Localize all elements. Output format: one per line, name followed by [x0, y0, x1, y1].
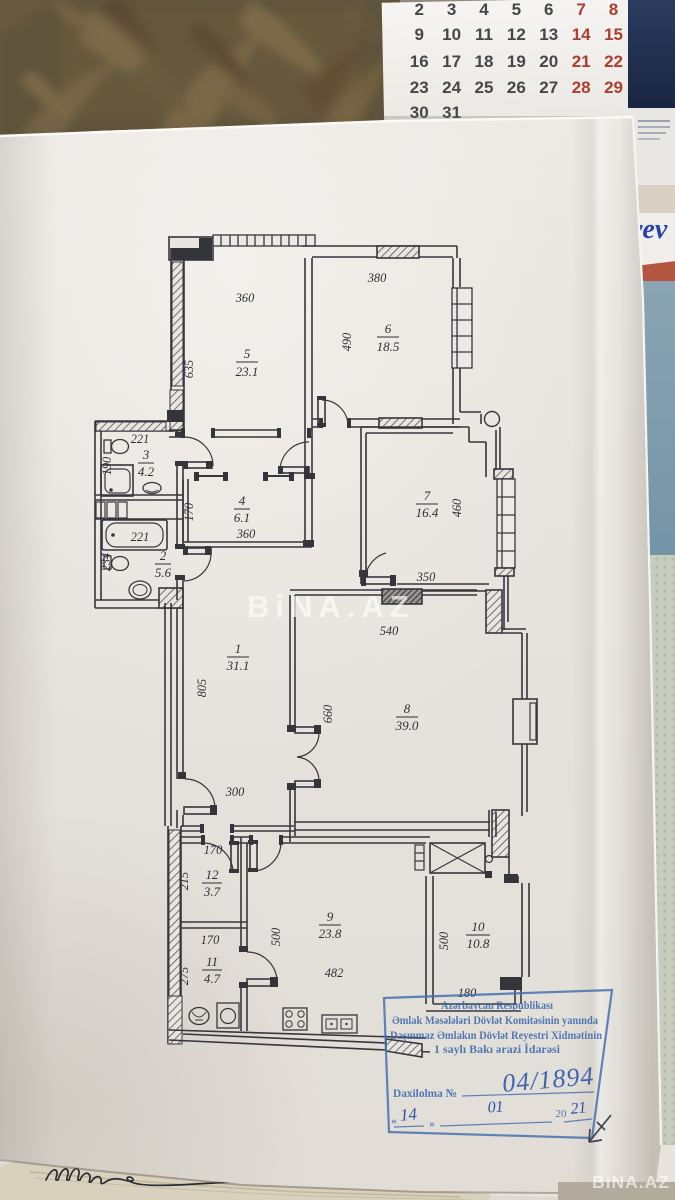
svg-text:805: 805: [195, 679, 209, 697]
svg-text:221: 221: [131, 530, 149, 544]
svg-text:4.7: 4.7: [204, 971, 221, 986]
svg-text:«: «: [391, 1115, 397, 1127]
svg-text:10.8: 10.8: [467, 936, 490, 951]
svg-text:23.8: 23.8: [319, 926, 342, 941]
svg-text:3.7: 3.7: [203, 884, 221, 899]
svg-text:5: 5: [244, 346, 251, 361]
svg-text:16.4: 16.4: [416, 505, 439, 520]
svg-text:18.5: 18.5: [377, 339, 400, 354]
svg-text:39.0: 39.0: [395, 718, 419, 733]
svg-text:660: 660: [321, 705, 335, 723]
svg-text:350: 350: [416, 570, 435, 584]
svg-text:»: »: [429, 1118, 435, 1130]
svg-text:7: 7: [424, 488, 431, 503]
svg-text:9: 9: [327, 909, 334, 924]
svg-text:8: 8: [404, 701, 411, 716]
svg-text:6: 6: [385, 321, 392, 336]
svg-text:360: 360: [235, 291, 254, 305]
svg-text:23.1: 23.1: [236, 364, 259, 379]
svg-text:170: 170: [204, 843, 222, 857]
svg-text:20: 20: [556, 1108, 568, 1120]
svg-text:215: 215: [177, 872, 191, 890]
svg-text:500: 500: [437, 932, 451, 950]
svg-text:Əmlak Məsələləri Dövlət Komitə: Əmlak Məsələləri Dövlət Komitəsinin yanı…: [392, 1015, 598, 1027]
svg-text:170: 170: [201, 933, 219, 947]
svg-text:380: 380: [367, 271, 386, 285]
svg-text:490: 490: [340, 333, 354, 351]
svg-text:360: 360: [236, 527, 255, 541]
svg-text:234: 234: [99, 553, 113, 571]
svg-text:Daxilolma №: Daxilolma №: [393, 1086, 457, 1100]
svg-text:10: 10: [472, 919, 486, 934]
svg-text:300: 300: [225, 785, 244, 799]
svg-text:460: 460: [450, 499, 464, 517]
svg-text:21: 21: [570, 1099, 588, 1118]
svg-text:170: 170: [182, 503, 196, 521]
svg-text:635: 635: [182, 360, 196, 378]
svg-text:12: 12: [206, 867, 220, 882]
svg-text:6.1: 6.1: [234, 510, 250, 525]
svg-text:5.6: 5.6: [155, 565, 172, 580]
svg-text:11: 11: [206, 954, 218, 969]
svg-text:3: 3: [142, 447, 150, 462]
svg-text:1 saylı Bakı ərazi İdarəsi: 1 saylı Bakı ərazi İdarəsi: [434, 1042, 561, 1056]
svg-text:2: 2: [160, 548, 167, 563]
svg-text:482: 482: [325, 966, 343, 980]
svg-text:500: 500: [269, 928, 283, 946]
svg-text:4.2: 4.2: [138, 464, 155, 479]
svg-text:31.1: 31.1: [226, 658, 250, 673]
svg-text:Daşınmaz Əmlakın Dövlət Reyest: Daşınmaz Əmlakın Dövlət Reyestri Xidməti…: [390, 1030, 603, 1042]
svg-text:4: 4: [239, 493, 246, 508]
svg-text:14: 14: [399, 1104, 418, 1124]
svg-text:221: 221: [131, 432, 149, 446]
svg-text:275: 275: [177, 967, 191, 985]
svg-text:190: 190: [100, 457, 114, 475]
svg-text:Azərbaycan Respublikası: Azərbaycan Respublikası: [441, 998, 554, 1012]
svg-text:01: 01: [487, 1098, 504, 1116]
svg-text:540: 540: [380, 624, 398, 638]
svg-text:1: 1: [235, 641, 242, 656]
